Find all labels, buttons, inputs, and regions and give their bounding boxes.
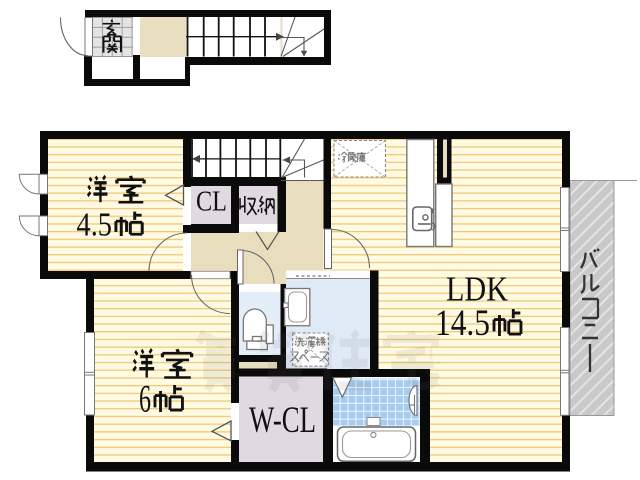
svg-text:6: 6: [139, 378, 151, 421]
svg-text:4.5: 4.5: [77, 207, 113, 244]
svg-text:CL: CL: [196, 186, 227, 218]
svg-text:14.5: 14.5: [435, 303, 490, 344]
svg-text:W-CL: W-CL: [249, 400, 316, 441]
